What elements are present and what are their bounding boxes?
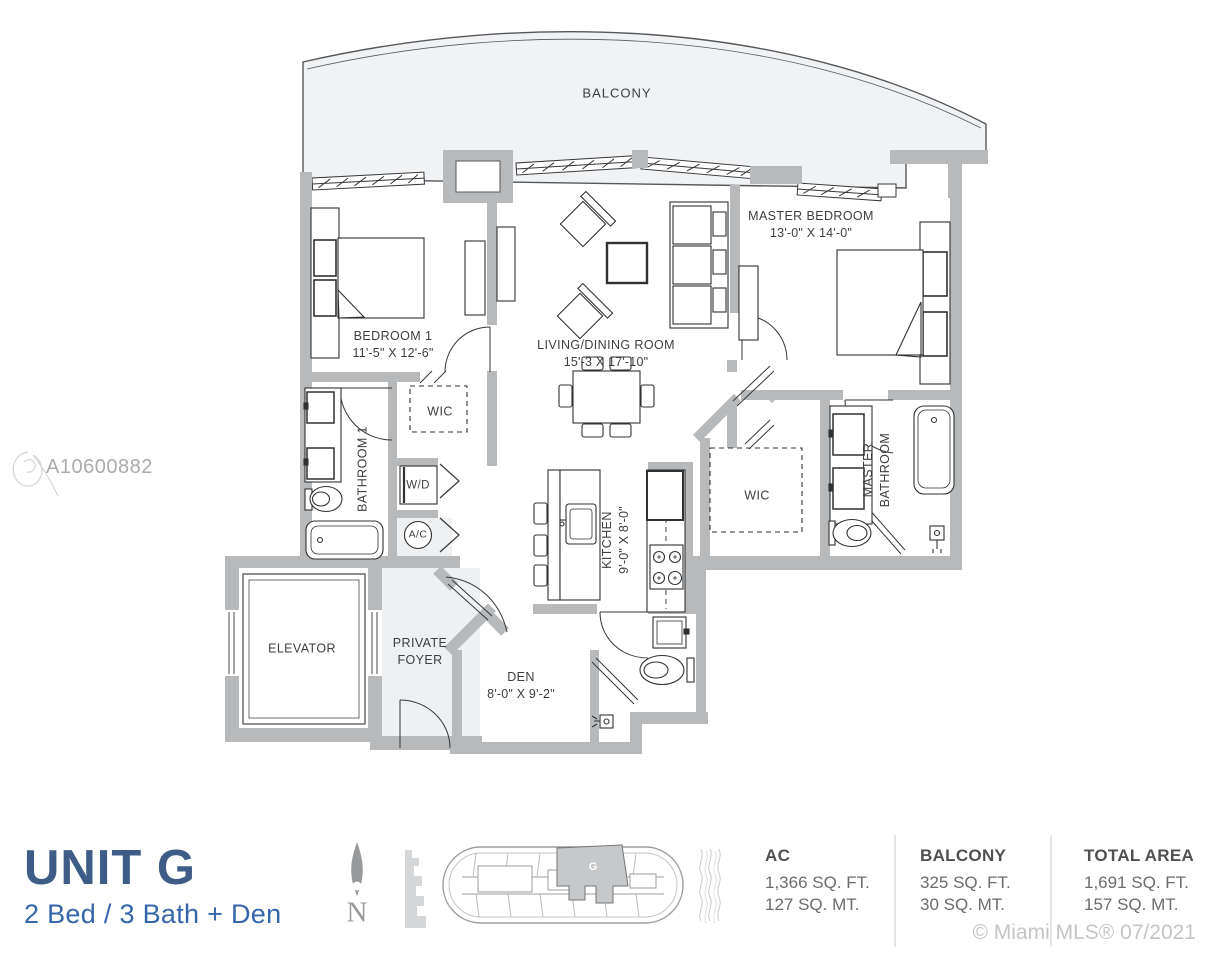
north-arrow-icon (351, 842, 363, 896)
balcony-label: BALCONY (582, 85, 651, 102)
unit-title: UNIT G (24, 840, 196, 896)
unit-subtitle: 2 Bed / 3 Bath + Den (24, 899, 281, 930)
ac-label: A/C (409, 527, 428, 544)
master-bathroom-label: MASTER BATHROOM (860, 427, 894, 513)
stat-balcony: BALCONY 325 SQ. FT. 30 SQ. MT. (920, 846, 1070, 916)
stat-ac-label: AC (765, 846, 915, 866)
stat-ac: AC 1,366 SQ. FT. 127 SQ. MT. (765, 846, 915, 916)
mls-watermark-id: A10600882 (46, 456, 153, 479)
stat-total-area: TOTAL AREA 1,691 SQ. FT. 157 SQ. MT. (1084, 846, 1208, 916)
kitchen-label: KITCHEN 9'-0" X 8'-0" (599, 506, 633, 574)
stat-ac-metric: 127 SQ. MT. (765, 894, 915, 916)
living-dining-label: LIVING/DINING ROOM 15'-3 X 17'-10" (537, 337, 675, 371)
stat-balcony-label: BALCONY (920, 846, 1070, 866)
stat-total-area-metric: 157 SQ. MT. (1084, 894, 1208, 916)
wic2-label: WIC (744, 488, 770, 505)
stat-total-area-label: TOTAL AREA (1084, 846, 1208, 866)
wic1-label: WIC (427, 404, 453, 421)
building-keyplan (443, 845, 683, 923)
stat-balcony-imperial: 325 SQ. FT. (920, 872, 1070, 894)
north-label: N (347, 897, 368, 930)
keyplan-unit-label: G (589, 861, 598, 873)
stat-balcony-metric: 30 SQ. MT. (920, 894, 1070, 916)
master-bedroom-label: MASTER BEDROOM 13'-0" X 14'-0" (748, 208, 874, 242)
den-label: DEN 8'-0" X 9'-2" (487, 669, 555, 703)
city-silhouette-icon (405, 850, 426, 928)
private-foyer-label: PRIVATE FOYER (384, 635, 456, 669)
elevator-label: ELEVATOR (268, 641, 336, 658)
structural-column (456, 161, 500, 192)
floorplan-drawing (0, 0, 1208, 955)
bedroom1-label: BEDROOM 1 11'-5" X 12'-6" (352, 328, 433, 362)
copyright-text: © Miami MLS® 07/2021 (972, 921, 1196, 945)
stat-total-area-imperial: 1,691 SQ. FT. (1084, 872, 1208, 894)
stat-ac-imperial: 1,366 SQ. FT. (765, 872, 915, 894)
bathroom1-label: BATHROOM 1 (355, 426, 372, 512)
water-waves-icon (700, 849, 720, 923)
washer-dryer-label: W/D (406, 478, 430, 495)
floorplan-page: BALCONY MASTER BEDROOM 13'-0" X 14'-0" B… (0, 0, 1208, 955)
